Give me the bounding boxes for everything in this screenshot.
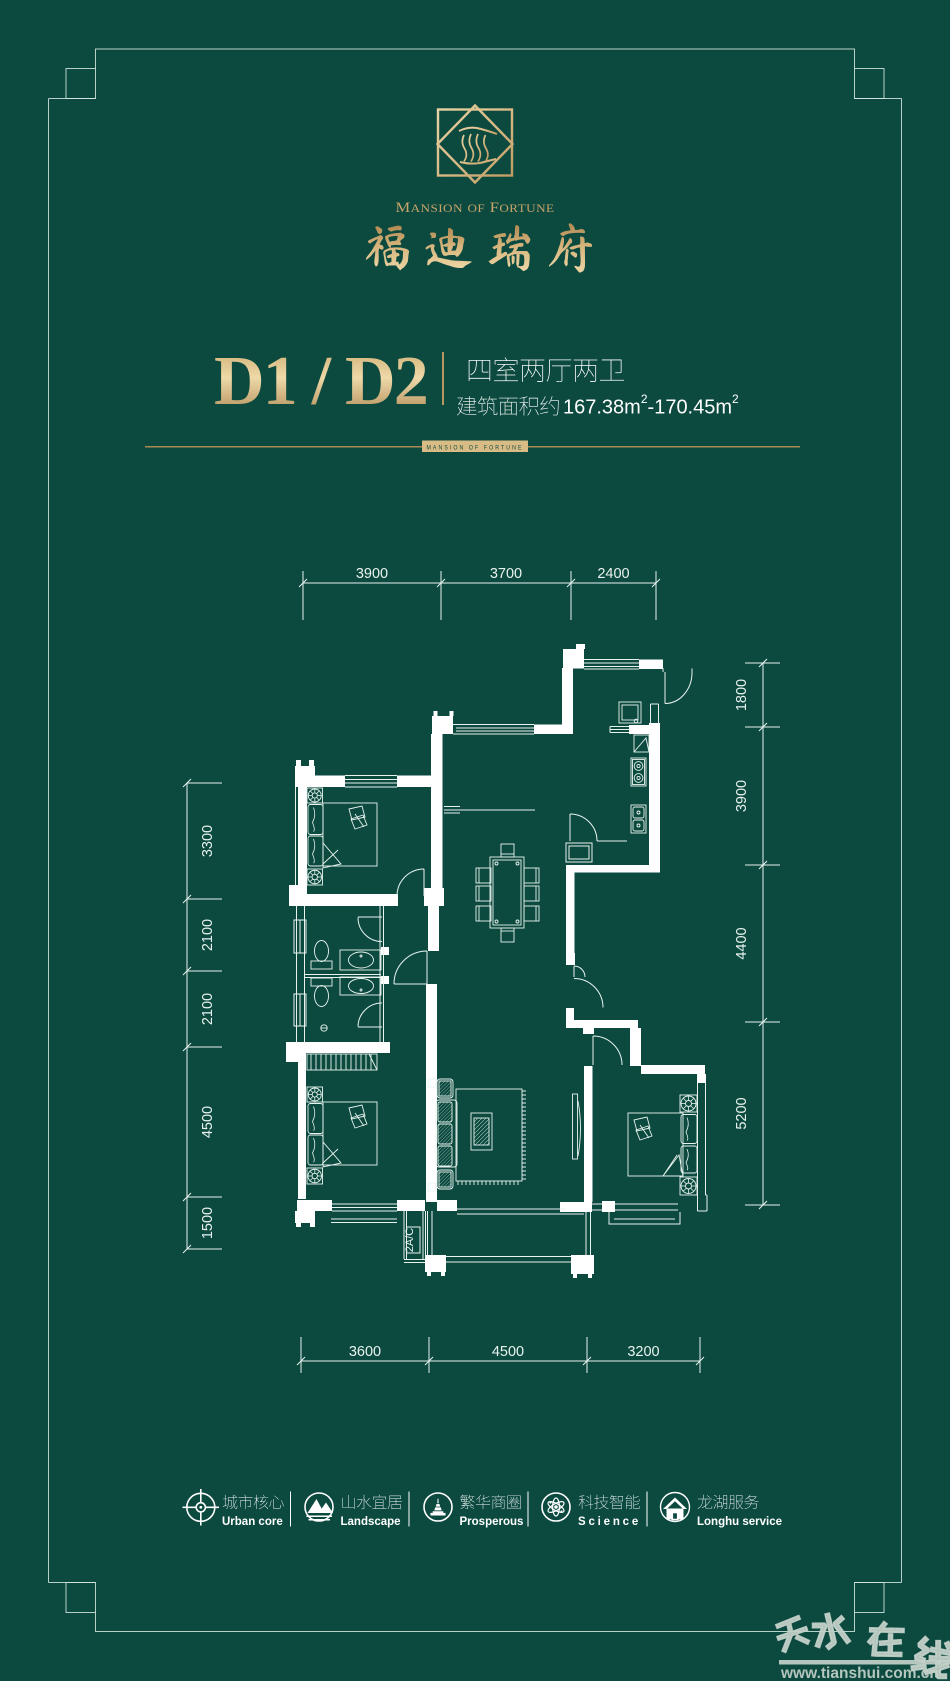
svg-text:4500: 4500 bbox=[492, 1344, 524, 1360]
svg-text:3300: 3300 bbox=[200, 825, 216, 857]
svg-text:3600: 3600 bbox=[349, 1344, 381, 1360]
svg-text:1800: 1800 bbox=[734, 679, 750, 711]
svg-text:Science: Science bbox=[578, 1516, 641, 1528]
svg-text:2100: 2100 bbox=[200, 993, 216, 1025]
svg-text:MANSION OF FORTUNE: MANSION OF FORTUNE bbox=[396, 200, 555, 216]
svg-text:2100: 2100 bbox=[200, 919, 216, 951]
svg-text:3900: 3900 bbox=[734, 780, 750, 812]
svg-text:www.tianshui.com.cn: www.tianshui.com.cn bbox=[780, 1665, 939, 1681]
svg-text:3700: 3700 bbox=[490, 566, 522, 582]
svg-text:167.38m2-170.45m2: 167.38m2-170.45m2 bbox=[563, 392, 739, 419]
svg-text:Urban core: Urban core bbox=[222, 1516, 283, 1528]
svg-text:4400: 4400 bbox=[734, 927, 750, 959]
svg-text:Landscape: Landscape bbox=[341, 1516, 401, 1528]
svg-text:2400: 2400 bbox=[597, 566, 629, 582]
svg-text:3900: 3900 bbox=[356, 566, 388, 582]
svg-text:Longhu service: Longhu service bbox=[697, 1516, 782, 1528]
svg-text:5200: 5200 bbox=[734, 1097, 750, 1129]
svg-text:Prosperous: Prosperous bbox=[460, 1516, 524, 1528]
svg-text:D1 / D2: D1 / D2 bbox=[214, 343, 427, 420]
svg-text:MANSION OF FORTUNE: MANSION OF FORTUNE bbox=[427, 445, 524, 452]
svg-text:1500: 1500 bbox=[200, 1207, 216, 1239]
svg-text:2A/C: 2A/C bbox=[404, 1228, 416, 1253]
svg-text:3200: 3200 bbox=[627, 1344, 659, 1360]
svg-text:4500: 4500 bbox=[200, 1106, 216, 1138]
